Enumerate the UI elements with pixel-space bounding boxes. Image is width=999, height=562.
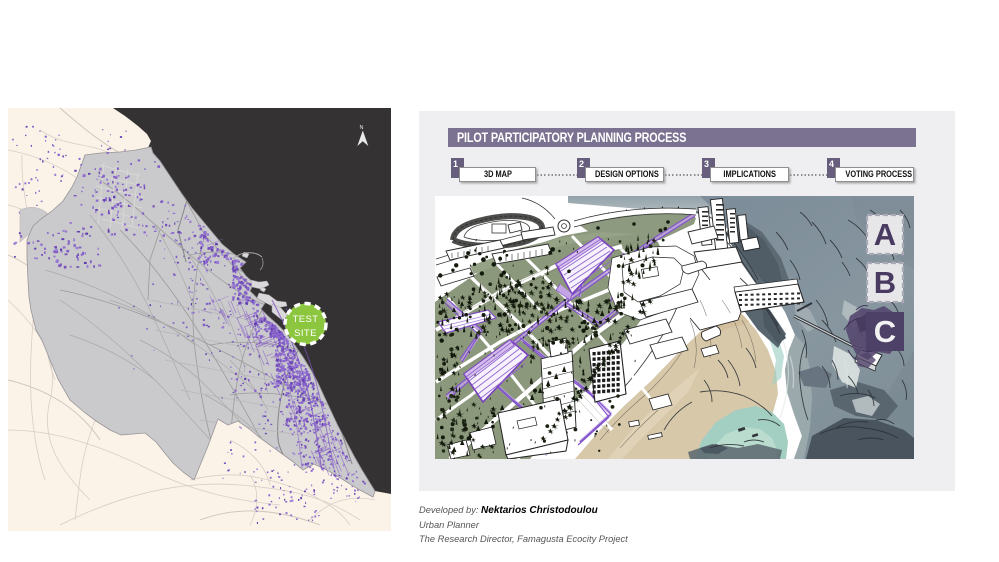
- svg-text:C: C: [874, 314, 896, 349]
- svg-text:A: A: [874, 217, 896, 252]
- svg-text:B: B: [874, 265, 896, 300]
